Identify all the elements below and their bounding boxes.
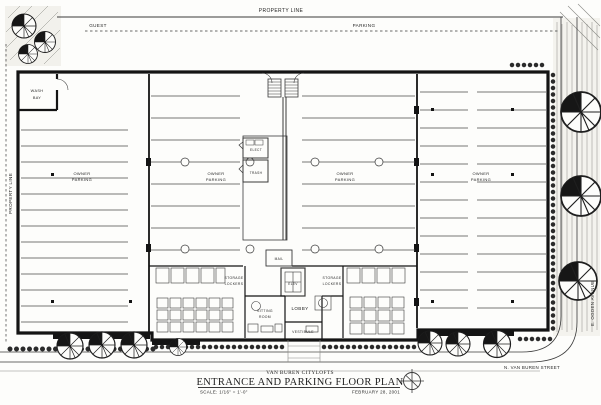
guest-parking-label-right: PARKING [353, 23, 376, 28]
lobby-furniture [248, 296, 331, 332]
mail-label: MAIL [275, 257, 284, 261]
storage-lockers-right-label2: LOCKERS [323, 282, 342, 286]
vestibule-label: VESTIBULE [292, 330, 314, 334]
plan-labels: PROPERTY LINE GUEST PARKING PROPERTY LIN… [8, 8, 595, 370]
floor-plan-sheet: PROPERTY LINE GUEST PARKING PROPERTY LIN… [0, 0, 601, 405]
storage-lockers-right-label: STORAGE [323, 276, 342, 280]
owner-parking-left2: PARKING [72, 177, 92, 182]
street-bottom-label: N. VAN BUREN STREET [504, 365, 560, 370]
owner-parking-center-left: OWNER [207, 171, 224, 176]
owner-parking-right2: PARKING [471, 177, 491, 182]
sitting-room-label: SITTING [257, 309, 273, 313]
drawing-scale: SCALE: 1/16" = 1'-0" [200, 390, 248, 395]
floor-plan-drawing: PROPERTY LINE GUEST PARKING PROPERTY LIN… [0, 0, 601, 405]
parking-stalls-left [21, 130, 128, 322]
elev-label: ELEV [288, 282, 298, 286]
shrub-rows [10, 65, 553, 349]
drawing-date: FEBRUARY 28, 2001 [352, 390, 400, 395]
guest-parking-label-left: GUEST [89, 23, 107, 28]
lobby-label: LOBBY [291, 306, 308, 311]
street-right-label: E. OGDEN AVENUE [590, 281, 595, 326]
stairs [262, 73, 304, 97]
owner-parking-center-right2: PARKING [335, 177, 355, 182]
landscape-ground [5, 4, 600, 336]
storage-lockers-left-label: STORAGE [225, 276, 244, 280]
property-line-top-label: PROPERTY LINE [259, 8, 304, 14]
owner-parking-left: OWNER [73, 171, 90, 176]
sheet-title: ENTRANCE AND PARKING FLOOR PLAN [196, 377, 403, 388]
trash-label: TRASH [250, 171, 263, 175]
building-core [239, 73, 305, 296]
owner-parking-center-left2: PARKING [206, 177, 226, 182]
project-name: VAN BUREN CITYLOFTS [266, 370, 334, 376]
owner-parking-right: OWNER [472, 171, 489, 176]
title-block: VAN BUREN CITYLOFTS ENTRANCE AND PARKING… [196, 369, 424, 395]
sitting-room-label2: ROOM [259, 315, 271, 319]
parking-stalls-right [420, 92, 546, 308]
storage-lockers-left [156, 268, 233, 332]
wash-bay-label2: BAY [33, 96, 41, 100]
north-arrow-icon [400, 369, 424, 393]
wash-bay-label: WASH [31, 89, 44, 93]
property-line-left-label: PROPERTY LINE [8, 173, 13, 214]
owner-parking-center-right: OWNER [336, 171, 353, 176]
elect-label: ELECT [250, 148, 262, 152]
storage-lockers-right [347, 268, 405, 334]
storage-lockers-left-label2: LOCKERS [225, 282, 244, 286]
entry-walk [288, 340, 320, 362]
